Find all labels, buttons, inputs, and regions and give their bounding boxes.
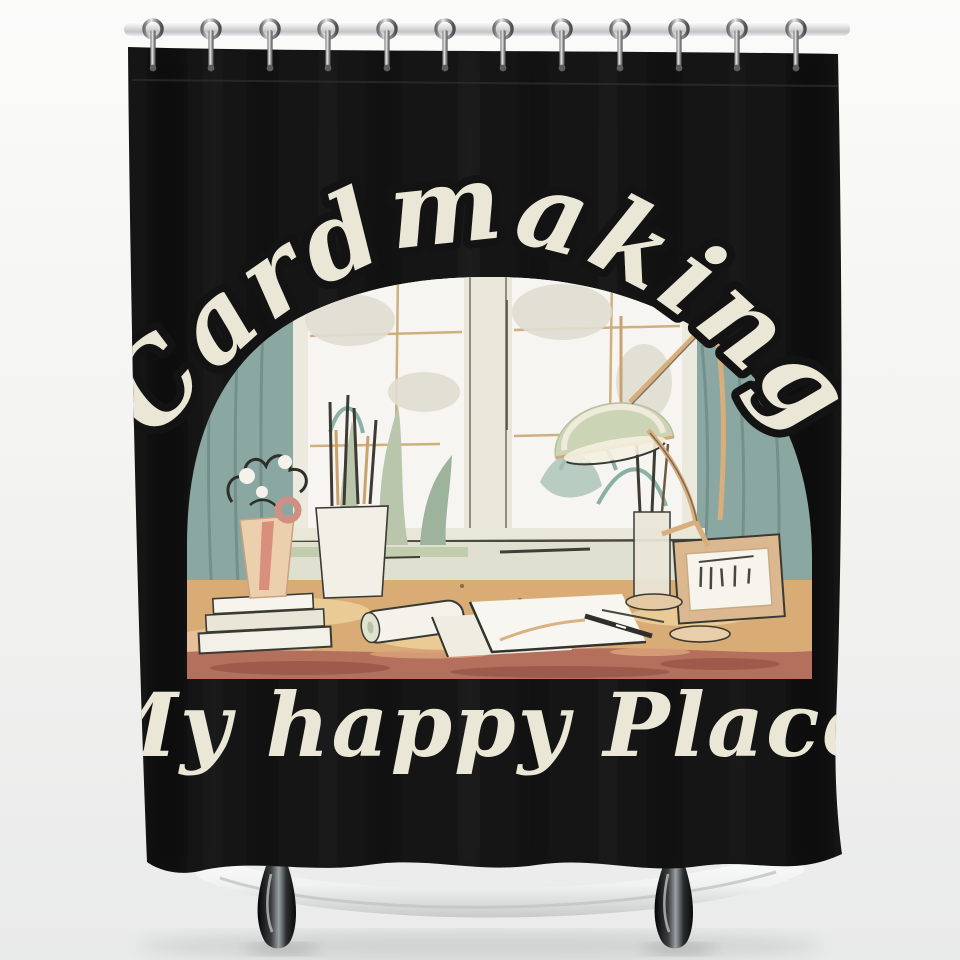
shower-curtain-product-photo: Cardmaking My happy Place (0, 0, 960, 960)
print-subtitle: My happy Place (77, 673, 879, 777)
print-picture-frame (673, 534, 784, 623)
print-books (197, 593, 332, 654)
tub-foot-left (258, 866, 296, 948)
floor-shadow (135, 931, 825, 960)
shower-curtain: Cardmaking My happy Place (77, 40, 880, 880)
scene-canvas: Cardmaking My happy Place (0, 0, 960, 960)
tub-foot-right (655, 866, 693, 948)
curtain-rod (124, 22, 850, 36)
